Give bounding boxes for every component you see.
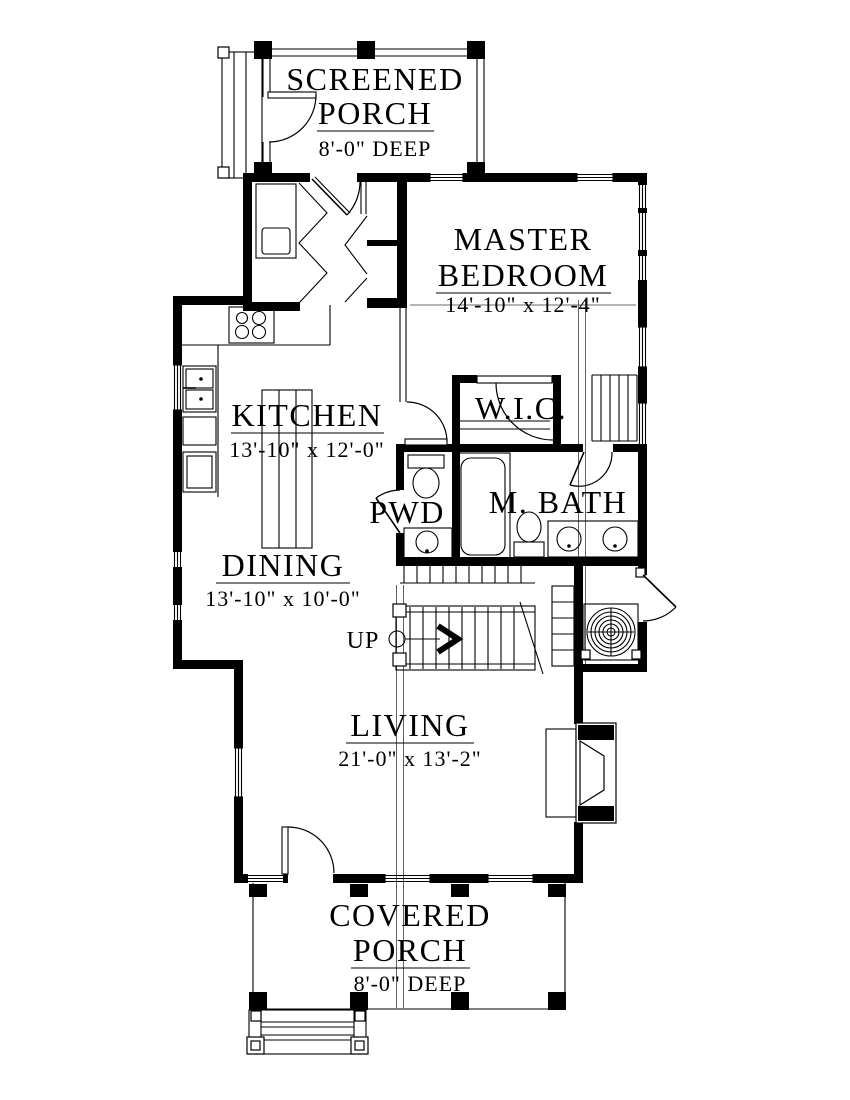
master-bedroom-label-line1: MASTER [454, 221, 593, 257]
entry-steps [247, 1010, 368, 1054]
screened-porch-label-line1: SCREENED [286, 61, 463, 97]
stair-up-hatch [592, 375, 637, 441]
stair-main [393, 602, 543, 674]
bifold-closet-doors-left [299, 183, 327, 303]
window [638, 327, 647, 367]
window [234, 748, 243, 797]
covered-porch-label-line1: COVERED [329, 897, 491, 933]
hvac-unit [581, 568, 645, 660]
pwd-label: PWD [369, 494, 445, 530]
porch-side-steps [218, 47, 262, 178]
wic-label: W.I.C. [475, 390, 567, 426]
window [640, 213, 646, 250]
pwd-toilet [408, 455, 444, 498]
kitchen-label: KITCHEN [232, 397, 383, 433]
kitchen-dimension: 13'-10" x 12'-0" [229, 437, 385, 462]
covered-porch-label-line2: PORCH [353, 932, 467, 968]
dining-label: DINING [222, 547, 345, 583]
dining-dimension: 13'-10" x 10'-0" [205, 586, 361, 611]
powder-sink [404, 528, 452, 558]
living-dimension: 21'-0" x 13'-2" [338, 746, 482, 771]
window [640, 185, 646, 208]
window [385, 874, 430, 883]
window [175, 605, 181, 620]
kitchen-sink [183, 366, 216, 412]
window [488, 874, 533, 883]
screen-door [268, 92, 316, 142]
front-door [282, 827, 334, 874]
master-bath-label: M. BATH [489, 484, 628, 520]
screened-porch-label-line2: PORCH [318, 95, 432, 131]
floor-plan-canvas: SCREENED PORCH 8'-0" DEEP MASTER BEDROOM… [0, 0, 850, 1100]
floor-plan-page: SCREENED PORCH 8'-0" DEEP MASTER BEDROOM… [0, 0, 850, 1100]
porch-hall-door [312, 177, 360, 215]
double-vanity [548, 521, 638, 557]
window [640, 256, 646, 280]
shelf-column [552, 586, 574, 666]
covered-porch-dimension: 8'-0" DEEP [354, 971, 467, 996]
window [638, 403, 647, 448]
fireplace [546, 723, 616, 823]
refrigerator [256, 184, 296, 258]
master-bedroom-label-line2: BEDROOM [438, 257, 609, 293]
stair-up-label: UP [347, 628, 380, 654]
window [175, 552, 181, 567]
master-bedroom-dimension: 14'-10" x 12'-4" [445, 292, 601, 317]
window [577, 173, 613, 182]
living-label: LIVING [350, 707, 469, 743]
range-burners [229, 307, 274, 343]
side-exterior-door [643, 575, 676, 621]
window [248, 876, 283, 882]
window [430, 173, 463, 182]
kitchen-hall-door [405, 402, 447, 445]
window [173, 365, 182, 410]
bath-door [570, 452, 612, 486]
kitchen-cabinets [183, 417, 216, 492]
screened-porch-dimension: 8'-0" DEEP [319, 136, 432, 161]
